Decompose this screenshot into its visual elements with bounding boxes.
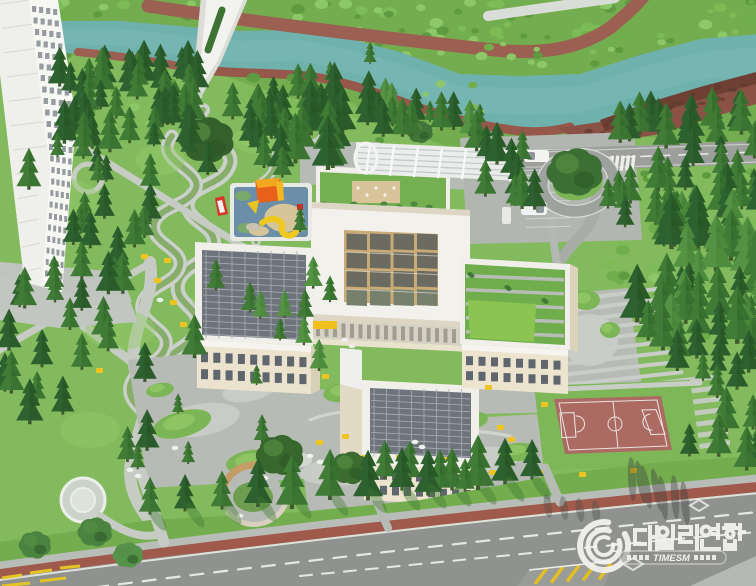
svg-text:TIMESM: TIMESM	[653, 553, 691, 564]
svg-text:D: D	[611, 540, 621, 555]
